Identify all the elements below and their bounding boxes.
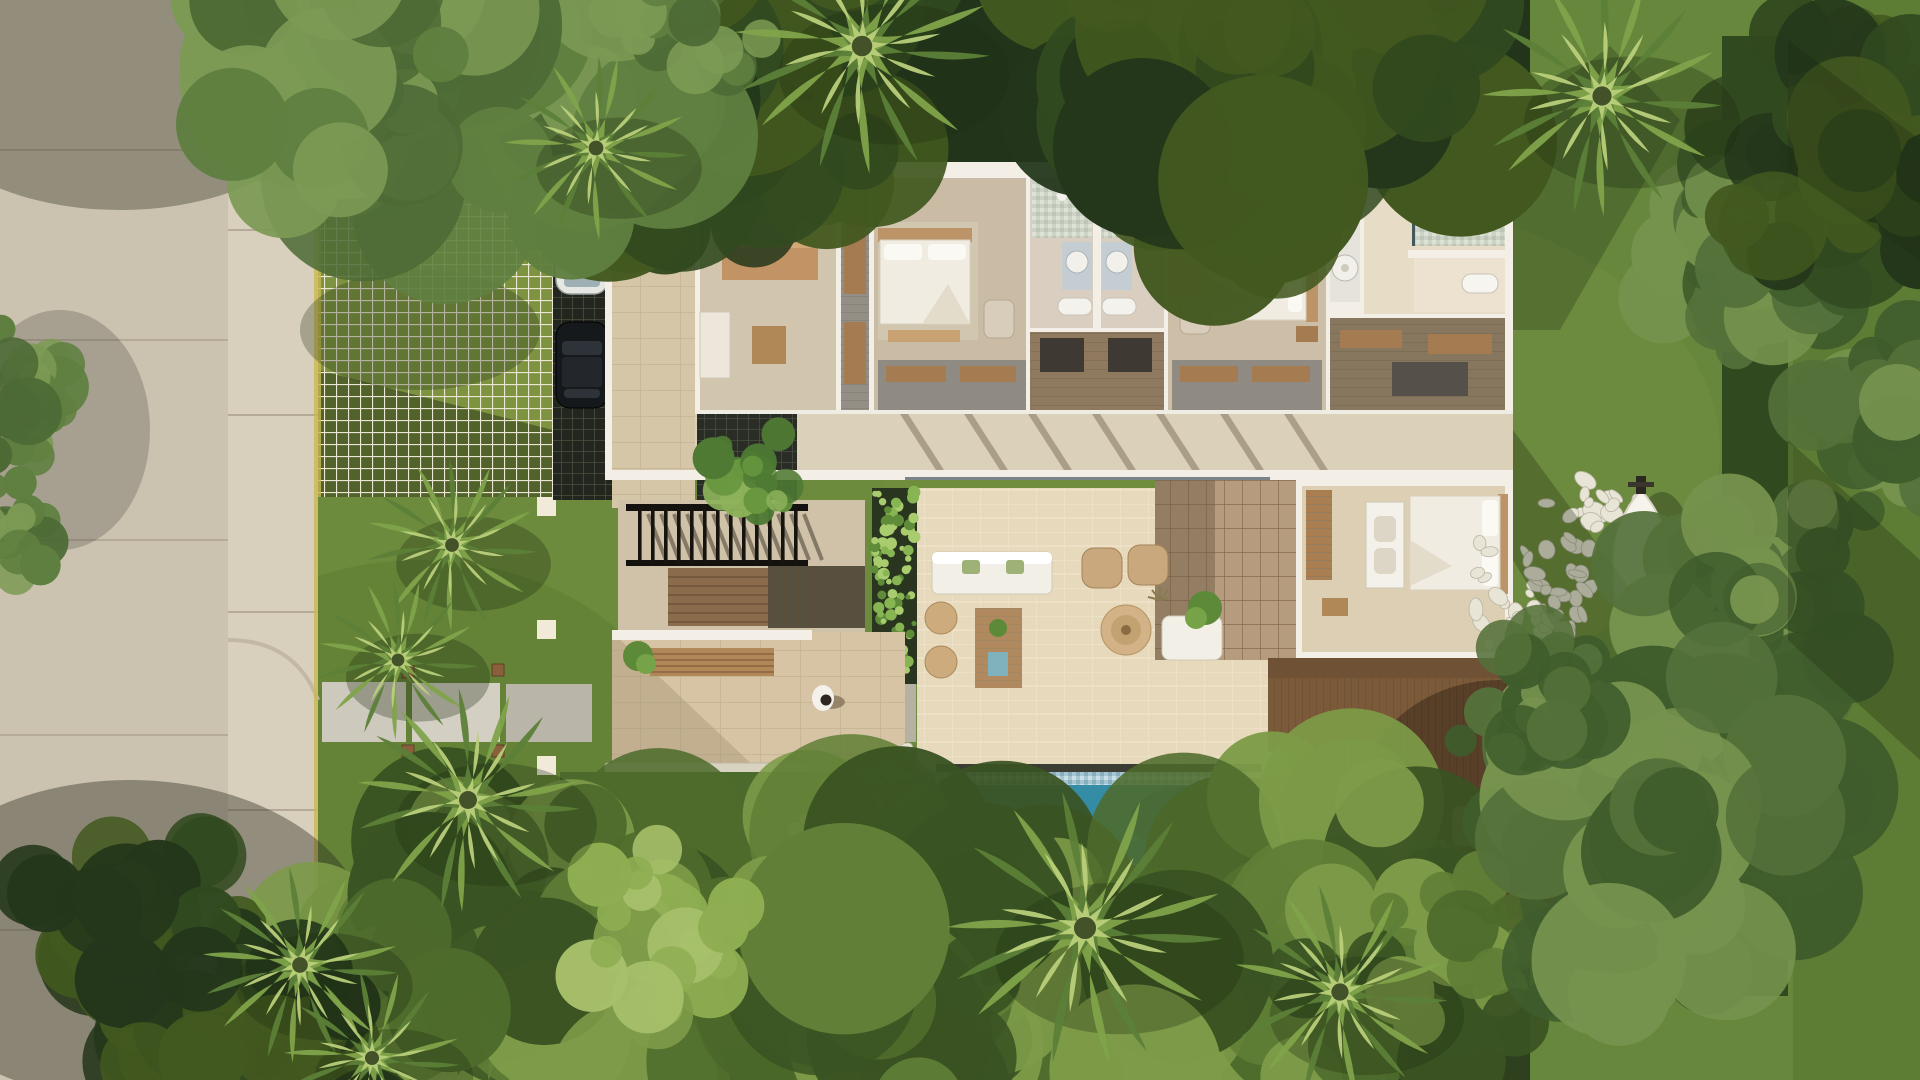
- green-wall-leaf: [871, 565, 879, 573]
- rattan-chair: [1082, 548, 1122, 588]
- tree-canopy-blob: [73, 844, 179, 950]
- closet-bench: [886, 366, 946, 382]
- green-wall-leaf: [884, 524, 895, 535]
- shrub: [738, 823, 949, 1034]
- stair-slat: [638, 506, 642, 564]
- green-wall-leaf: [881, 546, 889, 554]
- closet-rug: [1392, 362, 1468, 396]
- top-hedge-texture: [1373, 35, 1481, 143]
- tree-canopy-blob: [1476, 620, 1532, 676]
- sofa-cushion-green: [1006, 560, 1024, 574]
- stair-slat: [781, 506, 785, 564]
- palm-crown: [292, 957, 308, 973]
- closet-bench: [1428, 334, 1492, 354]
- bedroom4-dresser: [1366, 502, 1404, 588]
- green-wall-leaf: [908, 513, 918, 523]
- green-wall-leaf: [911, 621, 916, 626]
- wc-wall: [1408, 250, 1505, 258]
- sink-drain: [1341, 264, 1349, 272]
- green-wall-leaf: [905, 555, 911, 561]
- green-wall-leaf: [877, 611, 884, 618]
- stair-slat: [716, 506, 720, 564]
- green-wall-leaf: [909, 535, 915, 541]
- green-wall-leaf: [903, 545, 914, 556]
- palm-crown: [365, 1051, 379, 1065]
- bright-bush: [611, 961, 683, 1033]
- green-wall-leaf: [892, 576, 902, 586]
- aerial-villa-render: Aerial top-down 3D render of a tropical …: [0, 0, 1920, 1080]
- courtyard-glass-line: [905, 477, 1270, 480]
- bed1-pillow: [928, 244, 966, 260]
- tree-canopy-blob: [1532, 883, 1687, 1038]
- closet-rug: [1040, 338, 1084, 372]
- green-wall-leaf: [891, 498, 901, 508]
- tree-canopy-blob: [1666, 622, 1778, 734]
- tree-canopy-blob: [3, 466, 37, 500]
- courtyard-plant-leaf: [1185, 607, 1207, 629]
- tree-canopy-blob: [293, 122, 388, 217]
- bed1-bench: [888, 330, 960, 342]
- green-wall-leaf: [906, 630, 915, 639]
- courtyard: [612, 480, 1296, 772]
- rattan-chair: [1128, 545, 1168, 585]
- table-plant: [989, 619, 1007, 637]
- bed4-pillow: [1482, 500, 1498, 536]
- palm-crown: [445, 538, 459, 552]
- staircase: [618, 500, 865, 632]
- palm-shadow: [346, 634, 490, 722]
- master-closet: [1330, 318, 1505, 410]
- pebble-stone: [1469, 598, 1484, 621]
- tree-canopy-blob: [742, 20, 780, 58]
- tree-canopy-blob: [744, 487, 771, 514]
- bright-bush: [698, 902, 749, 953]
- right-hedge-texture: [1730, 575, 1779, 624]
- landing-planks: [768, 566, 865, 628]
- dresser-detail: [1374, 516, 1396, 542]
- palm-crown: [1592, 86, 1611, 105]
- wardrobe-planks: [1306, 490, 1332, 580]
- office-sideboard: [700, 312, 730, 378]
- green-wall-leaf: [895, 623, 904, 632]
- green-wall-leaf: [871, 537, 878, 544]
- top-bush-row: [447, 107, 553, 213]
- tree-canopy-blob: [761, 417, 795, 451]
- palm-crown: [589, 141, 604, 156]
- stair-slat: [677, 506, 681, 564]
- stair-slat: [794, 506, 798, 564]
- closet-bench: [844, 322, 866, 384]
- stair-slat: [664, 506, 668, 564]
- palm-crown: [459, 791, 477, 809]
- pouf: [925, 646, 957, 678]
- closet-bench: [1340, 330, 1402, 348]
- green-wall-leaf: [878, 579, 885, 586]
- tree-canopy-blob: [693, 437, 735, 479]
- closet-rug: [1108, 338, 1152, 372]
- tree-canopy-blob: [1445, 725, 1477, 757]
- pouf: [925, 602, 957, 634]
- toilet: [1058, 298, 1092, 315]
- stair-slat: [690, 506, 694, 564]
- stair-slat: [651, 506, 655, 564]
- palm-crown: [1074, 917, 1096, 939]
- palm-crown: [852, 36, 872, 56]
- office-stool: [752, 326, 786, 364]
- sofa-cushion-green: [962, 560, 980, 574]
- potted-plant-leaf: [636, 654, 656, 674]
- terrace-wall-band: [612, 630, 812, 640]
- palm-crown: [392, 654, 405, 667]
- hallway-wall-line: [695, 410, 1513, 414]
- scene-canvas: Aerial top-down 3D render of a tropical …: [0, 0, 1920, 1080]
- closet-bench: [1180, 366, 1238, 382]
- green-wall-leaf: [875, 491, 882, 498]
- sink-round: [1106, 251, 1128, 273]
- tree-canopy-blob: [1726, 756, 1846, 876]
- bed1-pillow: [884, 244, 922, 260]
- green-wall-leaf: [884, 506, 891, 513]
- path-slab: [506, 684, 592, 742]
- palm-crown: [1331, 983, 1348, 1000]
- hammock-bar: [1628, 482, 1654, 487]
- toilet: [1462, 274, 1498, 293]
- tree-canopy-blob: [158, 927, 243, 1012]
- green-wall-leaf: [895, 606, 904, 615]
- shrub: [1335, 758, 1424, 847]
- palm-shadow: [1524, 56, 1740, 188]
- palm-shadow: [395, 763, 597, 886]
- green-wall-leaf: [908, 486, 921, 499]
- jute-rug-center: [1121, 625, 1131, 635]
- dresser-detail: [1374, 548, 1396, 574]
- green-wall-leaf: [886, 579, 892, 585]
- sink-round: [1066, 251, 1088, 273]
- green-wall-leaf: [877, 591, 886, 600]
- toilet: [1102, 298, 1136, 315]
- palm-shadow: [1270, 956, 1464, 1075]
- tree-canopy-blob: [1634, 767, 1719, 852]
- green-wall-leaf: [883, 570, 889, 576]
- lawn-paver: [537, 620, 556, 639]
- tree-canopy-blob: [766, 490, 787, 511]
- green-wall-leaf: [881, 618, 887, 624]
- closet-bench: [960, 366, 1016, 382]
- top-hedge-texture: [1158, 75, 1368, 285]
- green-wall-leaf: [883, 515, 894, 526]
- green-wall-leaf: [905, 595, 910, 600]
- car-dark: [556, 322, 608, 408]
- tree-canopy-blob: [1527, 700, 1588, 761]
- green-wall-leaf: [884, 598, 895, 609]
- table-tray: [988, 652, 1008, 676]
- bright-bush: [590, 936, 622, 968]
- green-wall-leaf: [879, 498, 886, 505]
- green-wall-leaf: [881, 559, 889, 567]
- stair-slat: [703, 506, 707, 564]
- nightstand: [1296, 326, 1318, 342]
- sofa-back: [932, 552, 1052, 564]
- closet-bench: [1252, 366, 1310, 382]
- bedroom4-stool: [1322, 598, 1348, 616]
- tree-canopy-blob: [742, 456, 763, 477]
- tree-canopy-blob: [413, 27, 469, 83]
- green-wall-leaf: [888, 589, 898, 599]
- bedroom1-chair: [984, 300, 1014, 338]
- green-wall-leaf: [906, 565, 912, 571]
